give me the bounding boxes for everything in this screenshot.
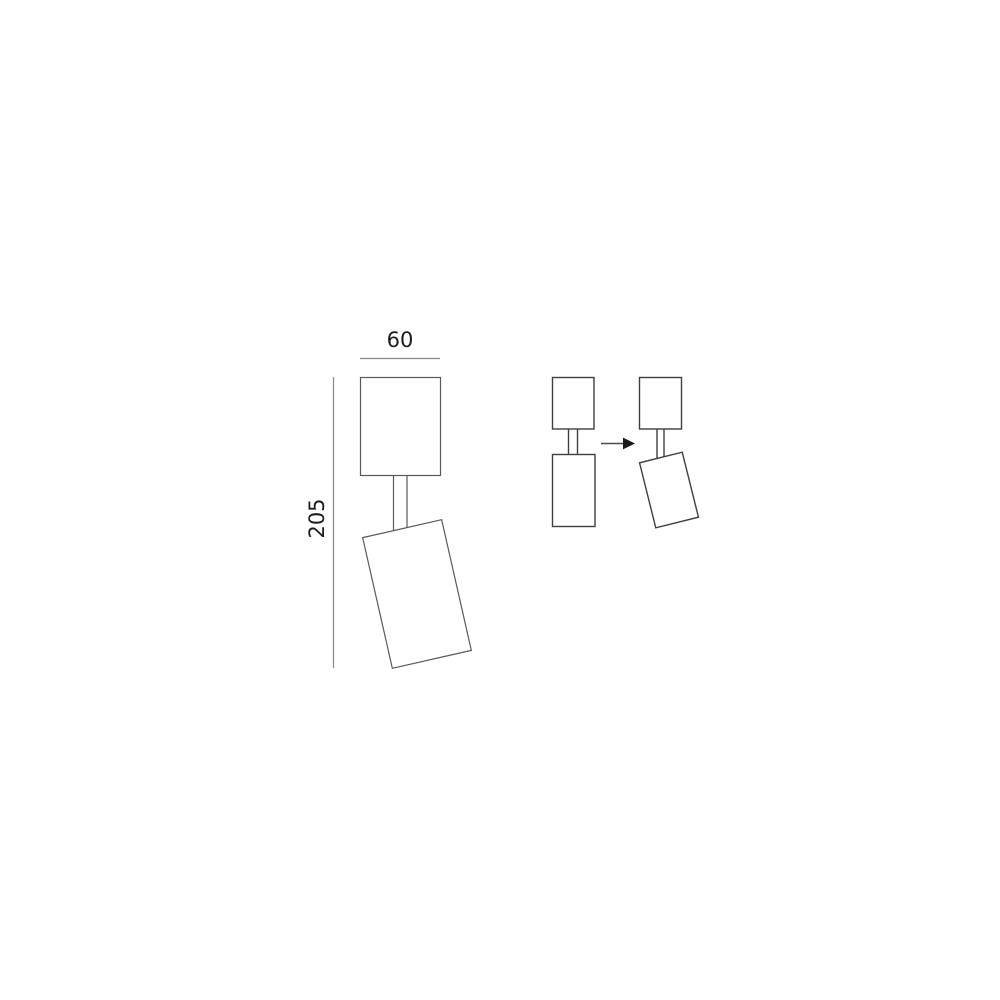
mount-box-outline — [361, 378, 441, 476]
step1-spot-head-outline — [553, 455, 596, 527]
sequence-view — [553, 378, 699, 528]
step2-spot-head-tilted-outline — [640, 452, 699, 528]
arrow-head — [623, 438, 635, 450]
step-straight — [553, 378, 596, 527]
main-view: 60 205 — [305, 328, 471, 668]
height-dimension-label: 205 — [305, 498, 329, 538]
step-tilted — [640, 378, 699, 528]
width-dimension-label: 60 — [387, 328, 414, 352]
spotlight-dimension-diagram: 60 205 — [0, 0, 1000, 1000]
spot-head-tilted-outline — [363, 520, 472, 669]
technical-drawing-canvas: 60 205 — [0, 0, 1000, 1000]
step2-mount-box-outline — [640, 378, 682, 430]
step1-mount-box-outline — [553, 378, 595, 430]
arrow-right-icon — [601, 438, 635, 450]
